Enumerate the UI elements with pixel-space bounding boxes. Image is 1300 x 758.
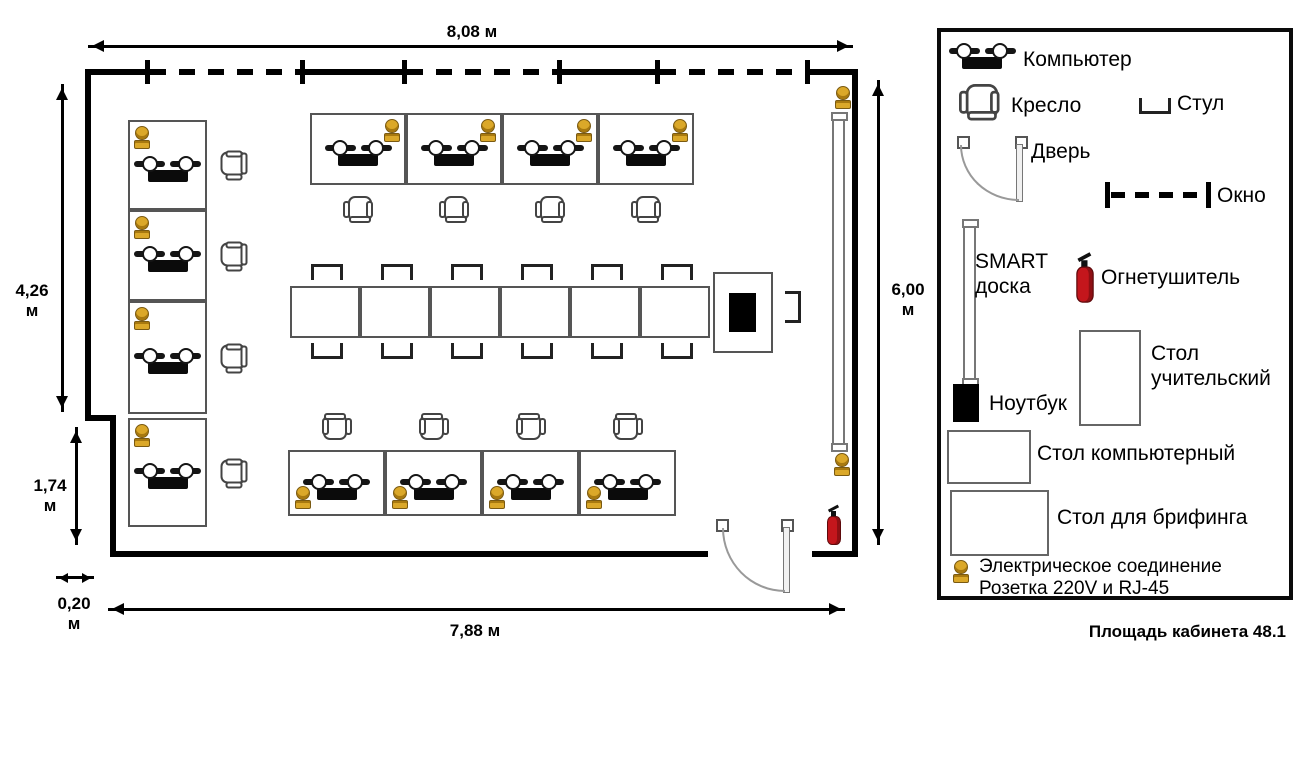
computer-desk-icon bbox=[947, 430, 1031, 484]
armchair-icon bbox=[221, 343, 248, 373]
keyboard-icon bbox=[962, 57, 1002, 69]
legend-door-label: Дверь bbox=[1031, 140, 1090, 165]
legend-socket-label: Электрическое соединение Розетка 220V и … bbox=[979, 556, 1222, 601]
armchair-arm bbox=[345, 418, 352, 435]
armchair-back bbox=[241, 345, 248, 367]
monitor-icon bbox=[457, 145, 488, 151]
armchair-arm bbox=[959, 91, 968, 114]
left-wall-upper bbox=[85, 69, 91, 421]
power-socket-icon bbox=[134, 307, 149, 330]
armchair-arm bbox=[636, 418, 643, 435]
monitor-icon bbox=[339, 479, 370, 485]
monitor-icon bbox=[533, 479, 564, 485]
monitor-icon bbox=[497, 479, 528, 485]
briefing-table bbox=[570, 286, 640, 338]
monitors bbox=[593, 479, 663, 485]
armchair-arm bbox=[539, 418, 546, 435]
power-socket-icon bbox=[835, 86, 850, 109]
legend-window-label: Окно bbox=[1217, 184, 1266, 209]
armchair-back bbox=[241, 460, 248, 482]
door-swing-arc bbox=[722, 528, 785, 592]
armchair-back bbox=[349, 216, 371, 223]
top-wall-segment bbox=[302, 69, 405, 75]
computer-icon bbox=[323, 139, 393, 166]
monitor-icon bbox=[594, 479, 625, 485]
armchair-icon bbox=[959, 84, 1000, 120]
chair-icon bbox=[1139, 98, 1167, 112]
dimension-label-offset: 0,20 м bbox=[50, 594, 98, 633]
chair-icon bbox=[661, 343, 693, 359]
armchair-arm bbox=[516, 418, 523, 435]
armchair-back bbox=[421, 413, 443, 420]
monitor-icon bbox=[170, 353, 201, 359]
armchair-arm bbox=[226, 264, 243, 271]
armchair-arm bbox=[322, 418, 329, 435]
armchair-back bbox=[637, 216, 659, 223]
chair-icon bbox=[521, 264, 553, 280]
window-icon bbox=[1105, 182, 1211, 208]
armchair-icon bbox=[613, 413, 643, 440]
monitors bbox=[496, 479, 566, 485]
dimension-arrow-left-upper bbox=[61, 84, 64, 412]
power-socket-icon bbox=[489, 486, 504, 509]
legend-smartboard-label: SMART доска bbox=[975, 250, 1048, 300]
monitor-icon bbox=[517, 145, 548, 151]
armchair-arm bbox=[442, 418, 449, 435]
keyboard-icon bbox=[148, 477, 188, 489]
legend-armchair-label: Кресло bbox=[1011, 94, 1081, 119]
monitor-icon bbox=[134, 468, 165, 474]
power-socket-icon bbox=[586, 486, 601, 509]
armchair-arm bbox=[226, 481, 243, 488]
armchair-back bbox=[967, 111, 997, 120]
monitor-icon bbox=[421, 145, 452, 151]
computer-icon bbox=[302, 473, 372, 500]
armchair-icon bbox=[631, 196, 661, 223]
right-wall bbox=[852, 69, 858, 557]
smart-board bbox=[832, 115, 845, 449]
armchair-icon bbox=[221, 151, 248, 181]
power-socket-icon bbox=[672, 119, 687, 142]
legend-briefing-table-label: Стол для брифинга bbox=[1057, 506, 1248, 531]
armchair-back bbox=[324, 413, 346, 420]
dimension-label-bottom: 7,88 м bbox=[415, 621, 535, 641]
power-socket-icon bbox=[480, 119, 495, 142]
computer-icon bbox=[947, 42, 1017, 69]
window-tick bbox=[1206, 182, 1211, 208]
extinguisher-body bbox=[1076, 267, 1094, 303]
window-dashes bbox=[1111, 192, 1205, 198]
monitor-icon bbox=[170, 161, 201, 167]
monitor-icon bbox=[613, 145, 644, 151]
briefing-table bbox=[360, 286, 430, 338]
monitors bbox=[133, 353, 203, 359]
power-socket-icon bbox=[134, 126, 149, 149]
chair-icon bbox=[381, 264, 413, 280]
armchair-icon bbox=[322, 413, 352, 440]
dimension-arrow-right bbox=[877, 80, 880, 545]
armchair-icon bbox=[419, 413, 449, 440]
chair-icon bbox=[311, 264, 343, 280]
monitor-icon bbox=[436, 479, 467, 485]
computer-icon bbox=[593, 473, 663, 500]
armchair-arm bbox=[226, 174, 243, 181]
briefing-table bbox=[290, 286, 360, 338]
dimension-label-right: 6,00 м bbox=[882, 280, 934, 319]
dimension-label-left-lower: 1,74 м bbox=[26, 476, 74, 515]
dimension-label-top: 8,08 м bbox=[412, 22, 532, 42]
computer-icon bbox=[133, 462, 203, 489]
monitor-icon bbox=[985, 48, 1016, 54]
monitors bbox=[515, 145, 585, 151]
chair-icon bbox=[451, 264, 483, 280]
door-swing-arc bbox=[960, 145, 1019, 201]
armchair-back bbox=[241, 153, 248, 175]
computer-icon bbox=[133, 347, 203, 374]
chair-icon bbox=[591, 343, 623, 359]
legend-computer-desk-label: Стол компьютерный bbox=[1037, 442, 1235, 467]
armchair-arm bbox=[419, 418, 426, 435]
monitor-icon bbox=[170, 468, 201, 474]
monitors bbox=[611, 145, 681, 151]
armchair-back bbox=[541, 216, 563, 223]
monitor-icon bbox=[134, 161, 165, 167]
computer-icon bbox=[133, 155, 203, 182]
computer-icon bbox=[419, 139, 489, 166]
computer-icon bbox=[133, 245, 203, 272]
monitors bbox=[399, 479, 469, 485]
monitor-icon bbox=[134, 251, 165, 257]
keyboard-icon bbox=[608, 488, 648, 500]
legend-extinguisher-label: Огнетушитель bbox=[1101, 266, 1240, 291]
window-tick bbox=[655, 60, 660, 84]
armchair-back bbox=[445, 216, 467, 223]
window bbox=[660, 69, 805, 75]
armchair-icon bbox=[439, 196, 469, 223]
extinguisher-body bbox=[827, 516, 841, 545]
computer-icon bbox=[399, 473, 469, 500]
monitors bbox=[133, 161, 203, 167]
floor-plan-canvas: 8,08 м 4,26 м 1,74 м 6,00 м 0,20 м 7,88 … bbox=[0, 0, 1300, 758]
armchair-arm bbox=[631, 201, 638, 218]
keyboard-icon bbox=[148, 260, 188, 272]
area-note: Площадь кабинета 48.1 bbox=[1089, 622, 1286, 642]
keyboard-icon bbox=[317, 488, 357, 500]
computer-icon bbox=[611, 139, 681, 166]
armchair-arm bbox=[226, 366, 243, 373]
monitors bbox=[133, 468, 203, 474]
top-wall-segment bbox=[559, 69, 658, 75]
computer-icon bbox=[515, 139, 585, 166]
window bbox=[407, 69, 557, 75]
monitors bbox=[419, 145, 489, 151]
window-tick bbox=[300, 60, 305, 84]
dimension-arrow-left-lower bbox=[75, 427, 78, 545]
window-tick bbox=[1105, 182, 1110, 208]
chair-icon bbox=[521, 343, 553, 359]
briefing-table bbox=[500, 286, 570, 338]
monitor-icon bbox=[303, 479, 334, 485]
power-socket-icon bbox=[953, 560, 968, 583]
top-wall-segment bbox=[807, 69, 858, 75]
monitor-icon bbox=[400, 479, 431, 485]
smart-board-icon bbox=[963, 222, 976, 384]
briefing-table-icon bbox=[950, 490, 1049, 556]
power-socket-icon bbox=[134, 216, 149, 239]
computer-icon bbox=[947, 42, 1017, 69]
monitors bbox=[302, 479, 372, 485]
keyboard-icon bbox=[414, 488, 454, 500]
armchair-icon bbox=[343, 196, 373, 223]
monitors bbox=[323, 145, 393, 151]
chair-icon bbox=[311, 343, 343, 359]
dimension-label-left-upper: 4,26 м bbox=[8, 281, 56, 320]
armchair-icon bbox=[535, 196, 565, 223]
laptop-icon bbox=[953, 384, 979, 422]
power-socket-icon bbox=[576, 119, 591, 142]
monitors bbox=[133, 251, 203, 257]
chair-icon bbox=[785, 291, 801, 323]
armchair-back bbox=[615, 413, 637, 420]
monitor-icon bbox=[170, 251, 201, 257]
monitor-icon bbox=[630, 479, 661, 485]
teacher-desk-icon bbox=[1079, 330, 1141, 426]
legend-computer-label: Компьютер bbox=[1023, 48, 1132, 73]
bottom-wall-segment bbox=[812, 551, 858, 557]
window-tick bbox=[557, 60, 562, 84]
window-tick bbox=[805, 60, 810, 84]
bottom-wall-segment bbox=[110, 551, 708, 557]
monitor-icon bbox=[361, 145, 392, 151]
top-wall-segment bbox=[85, 69, 148, 75]
armchair-arm bbox=[613, 418, 620, 435]
keyboard-icon bbox=[511, 488, 551, 500]
power-socket-icon bbox=[295, 486, 310, 509]
chair-icon bbox=[591, 264, 623, 280]
monitors bbox=[947, 48, 1017, 54]
window bbox=[150, 69, 300, 75]
armchair-arm bbox=[439, 201, 446, 218]
briefing-table bbox=[430, 286, 500, 338]
keyboard-icon bbox=[148, 170, 188, 182]
armchair-icon bbox=[959, 84, 1001, 124]
chair-icon bbox=[1139, 98, 1171, 114]
armchair-back bbox=[518, 413, 540, 420]
computer-icon bbox=[496, 473, 566, 500]
legend-teacher-desk-label: Стол учительский bbox=[1151, 342, 1271, 392]
left-wall-lower bbox=[110, 415, 116, 557]
monitor-icon bbox=[134, 353, 165, 359]
keyboard-icon bbox=[148, 362, 188, 374]
briefing-table bbox=[640, 286, 710, 338]
monitor-icon bbox=[949, 48, 980, 54]
window-tick bbox=[145, 60, 150, 84]
monitor-icon bbox=[325, 145, 356, 151]
legend-box: Компьютер Кресло Стул Дверь Окно SMART д… bbox=[937, 28, 1293, 600]
armchair-back bbox=[241, 243, 248, 265]
fire-extinguisher-icon bbox=[826, 506, 840, 544]
power-socket-icon bbox=[134, 424, 149, 447]
chair-icon bbox=[451, 343, 483, 359]
power-socket-icon bbox=[834, 453, 849, 476]
armchair-arm bbox=[535, 201, 542, 218]
chair-icon bbox=[661, 264, 693, 280]
power-socket-icon bbox=[384, 119, 399, 142]
dimension-arrow-bottom bbox=[108, 608, 845, 611]
armchair-arm bbox=[343, 201, 350, 218]
power-socket-icon bbox=[392, 486, 407, 509]
dimension-arrow-offset bbox=[56, 576, 94, 579]
laptop-icon bbox=[729, 293, 756, 332]
armchair-icon bbox=[516, 413, 546, 440]
armchair-icon bbox=[221, 241, 248, 271]
fire-extinguisher-icon bbox=[1075, 254, 1093, 302]
chair-icon bbox=[381, 343, 413, 359]
dimension-arrow-top bbox=[88, 45, 853, 48]
door-icon bbox=[957, 136, 1027, 204]
monitor-icon bbox=[649, 145, 680, 151]
armchair-icon bbox=[221, 458, 248, 488]
monitor-icon bbox=[553, 145, 584, 151]
legend-chair-label: Стул bbox=[1177, 92, 1224, 117]
window-tick bbox=[402, 60, 407, 84]
legend-laptop-label: Ноутбук bbox=[989, 392, 1067, 417]
